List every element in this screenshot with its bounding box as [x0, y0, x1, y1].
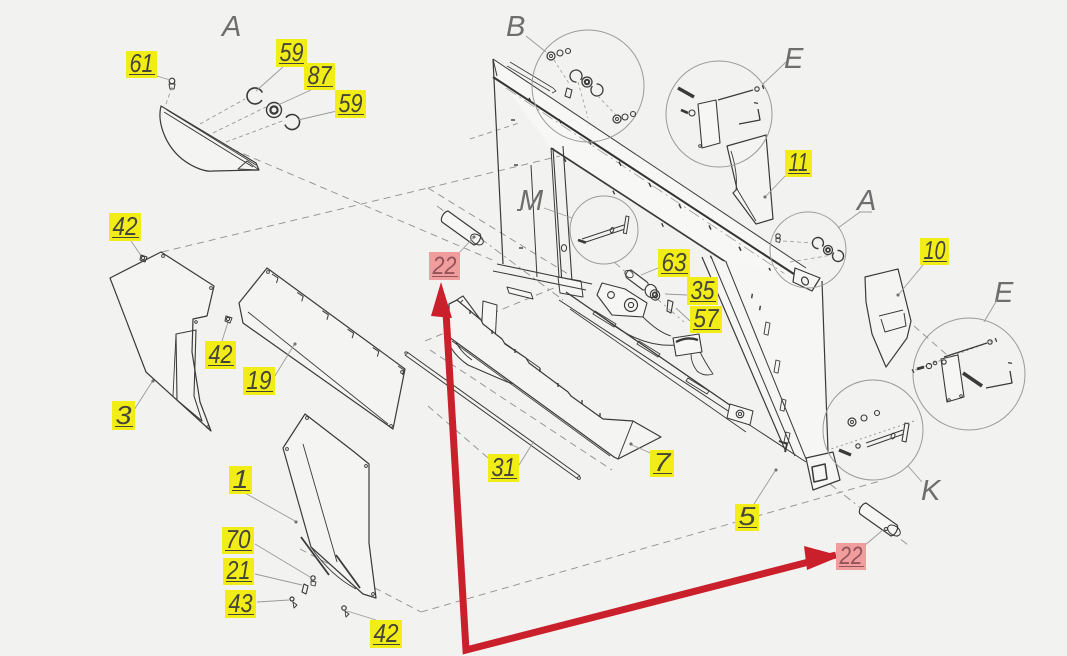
svg-text:M: M: [519, 185, 544, 217]
svg-text:43: 43: [229, 588, 253, 618]
svg-text:87: 87: [308, 60, 333, 90]
svg-text:42: 42: [374, 618, 399, 648]
svg-text:70: 70: [226, 524, 251, 554]
svg-text:5: 5: [739, 501, 757, 531]
svg-text:59: 59: [339, 88, 363, 118]
svg-text:63: 63: [662, 247, 687, 277]
svg-text:10: 10: [924, 235, 946, 265]
svg-text:3: 3: [116, 400, 133, 430]
svg-text:19: 19: [247, 365, 272, 395]
svg-text:K: K: [921, 475, 942, 507]
svg-text:B: B: [506, 11, 525, 43]
svg-text:E: E: [784, 43, 804, 75]
svg-text:42: 42: [113, 211, 138, 241]
svg-text:22: 22: [839, 542, 863, 570]
svg-text:7: 7: [654, 447, 673, 477]
svg-text:61: 61: [130, 48, 154, 78]
svg-text:22: 22: [432, 252, 457, 280]
svg-text:31: 31: [492, 452, 516, 482]
svg-text:35: 35: [691, 275, 715, 305]
svg-text:A: A: [220, 11, 241, 43]
svg-text:21: 21: [226, 555, 251, 585]
svg-text:42: 42: [209, 339, 233, 369]
svg-text:E: E: [994, 277, 1014, 309]
svg-text:59: 59: [280, 37, 304, 67]
svg-text:57: 57: [694, 303, 720, 333]
svg-text:1: 1: [233, 464, 249, 494]
svg-text:11: 11: [789, 147, 809, 177]
